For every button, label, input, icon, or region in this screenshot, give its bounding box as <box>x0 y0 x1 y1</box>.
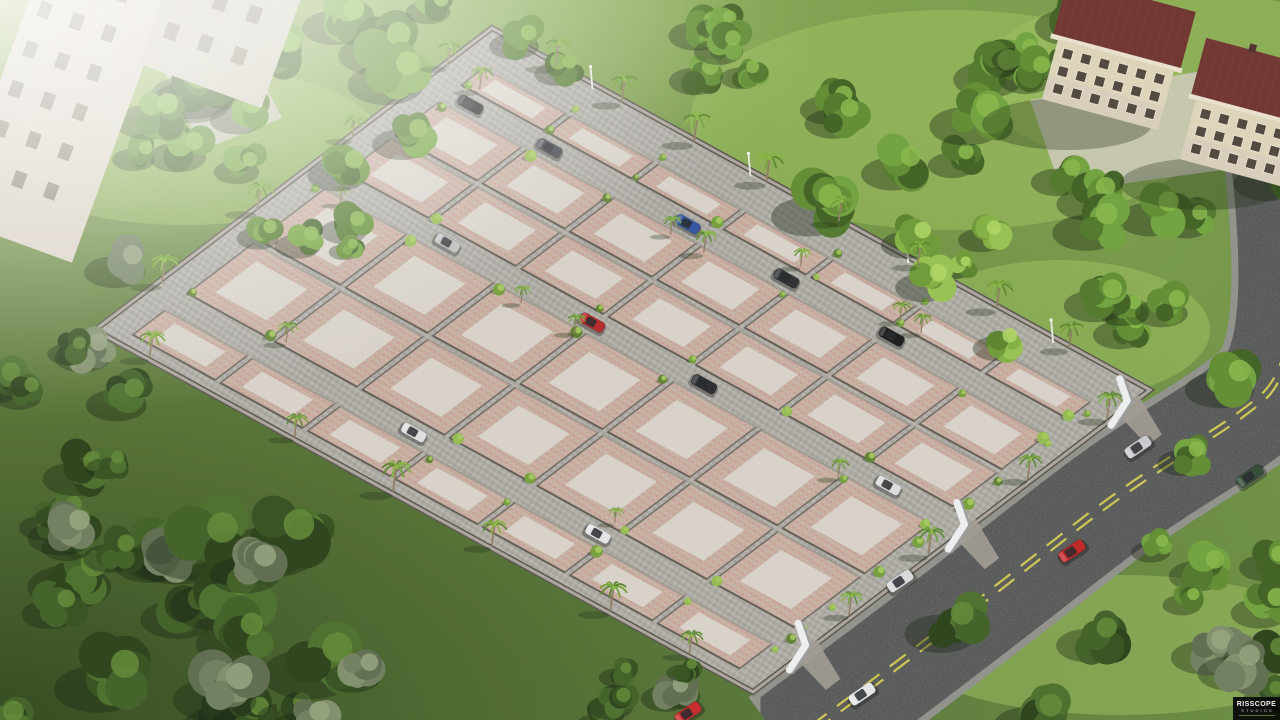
watermark-studio-subtitle: STUDIOS <box>1241 709 1273 713</box>
haze-overlay <box>0 0 1280 720</box>
watermark-tagline-line <box>1239 715 1275 716</box>
aerial-render-image: RISSCOPE STUDIOS <box>0 0 1280 720</box>
watermark: RISSCOPE STUDIOS <box>1233 697 1280 720</box>
watermark-studio-name: RISSCOPE <box>1237 701 1276 708</box>
aerial-scene-svg <box>0 0 1280 720</box>
